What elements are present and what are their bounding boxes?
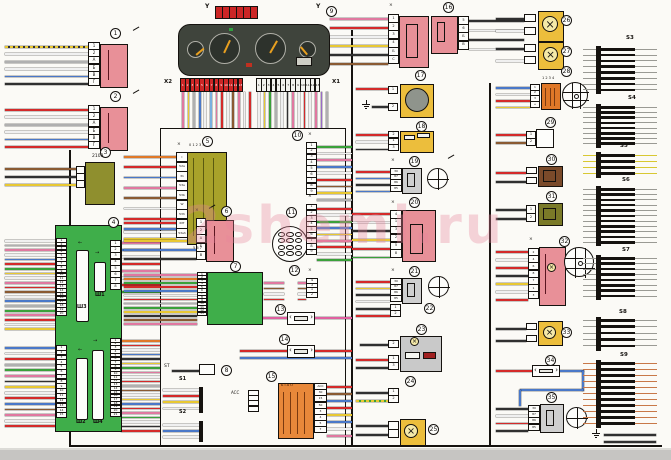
comb-s5 — [601, 160, 635, 163]
wires-x1-down — [275, 92, 277, 128]
wire-starter — [172, 370, 199, 372]
comb-s8 — [601, 319, 635, 322]
comb-s6 — [601, 236, 635, 239]
label-sh2: Ш2 — [76, 420, 86, 425]
comb-s9 — [583, 393, 596, 394]
comb-s9 — [601, 368, 635, 371]
component-detail — [407, 283, 415, 297]
wires-28 — [496, 87, 530, 89]
comb-s3 — [601, 48, 635, 51]
component-detail — [193, 158, 194, 236]
wires-x2-down — [199, 92, 201, 128]
comb-s8 — [601, 325, 635, 328]
wires-block-left-top — [5, 328, 56, 330]
comb-s4 — [635, 138, 657, 139]
wires-29 — [496, 134, 526, 136]
wires-2103 — [5, 168, 76, 170]
pins-relay19: 30878685 — [390, 168, 402, 192]
badge-23: 23 — [416, 324, 427, 335]
pins-31: 12 — [526, 205, 536, 222]
wires-block-right-bottom — [121, 412, 160, 414]
wires-20 — [352, 257, 390, 259]
wires-block-left-bottom — [5, 375, 56, 377]
comb-s5 — [635, 155, 657, 156]
comb-s6 — [635, 226, 657, 227]
wire-motor17 — [356, 88, 388, 90]
badge-13: 13 — [275, 304, 286, 315]
wires-block-right-bottom — [121, 399, 160, 401]
badge-26: 26 — [561, 15, 572, 26]
wires-30 — [496, 172, 526, 174]
wires-green7 — [124, 274, 197, 276]
badge-21: 21 — [409, 266, 420, 277]
comb-s4 — [583, 122, 596, 123]
comb-s6 — [601, 209, 635, 212]
wires-block-right-bottom — [121, 403, 160, 405]
wires-block-left-top — [5, 310, 56, 312]
component28-body — [541, 83, 561, 110]
wires-strip11 — [317, 240, 352, 242]
wire-34-loop-d — [519, 390, 521, 406]
wires-green7 — [124, 307, 197, 309]
label-st: ST — [164, 365, 170, 370]
wires-relay16-left — [330, 63, 388, 65]
comb-s9-spine — [596, 360, 601, 428]
wire-34-loop-a — [560, 370, 584, 372]
wires-block-left-top — [5, 245, 56, 247]
comb-s6 — [635, 242, 657, 243]
wires-relay21 — [356, 288, 390, 290]
wires-18 — [356, 134, 388, 136]
wires-18 — [356, 141, 388, 143]
wires-green7 — [124, 311, 197, 313]
wires-green7 — [124, 303, 197, 305]
wires-s1 — [163, 395, 199, 397]
wires-green7 — [124, 278, 197, 280]
wires-relay16-left — [330, 18, 388, 20]
component-detail — [297, 392, 298, 434]
comb-s6 — [635, 205, 657, 206]
comb-s6 — [635, 221, 657, 222]
label-acc: ACC — [231, 391, 239, 395]
label-s8: S8 — [619, 310, 627, 316]
comb-s5 — [583, 173, 596, 174]
wires-28 — [496, 94, 530, 96]
wires-strip11 — [317, 234, 352, 236]
wires-block-right-bottom — [121, 408, 160, 410]
comb-s3 — [635, 60, 657, 61]
wires-block-left-bottom — [5, 425, 56, 427]
comb-s9 — [583, 363, 596, 364]
wires-block-right-bottom — [121, 367, 160, 369]
wires-2103 — [5, 176, 76, 178]
comb-s9 — [583, 423, 596, 424]
comb-s3 — [635, 66, 657, 67]
wires-s2 — [163, 436, 199, 438]
pins-strip11: 123456789 — [306, 204, 317, 255]
badge-28: 28 — [561, 66, 572, 77]
comb-s9 — [601, 392, 635, 395]
wires-x2-down — [238, 92, 240, 128]
wires-strip10 — [317, 146, 352, 148]
wires-switch5 — [124, 208, 176, 210]
wires-31 — [496, 218, 526, 220]
wires-x2-down — [221, 92, 223, 128]
wires-block-right-bottom — [121, 372, 160, 374]
wires-relay2 — [5, 109, 88, 111]
pins-strip10: 123456789 — [306, 142, 317, 195]
pins-relay2: 12АБВГ — [88, 105, 100, 149]
wires-strip12-left — [264, 288, 284, 290]
comb-s5 — [583, 167, 596, 168]
wires-relay35 — [496, 423, 528, 425]
component-detail — [545, 88, 546, 106]
comb-s4 — [635, 143, 657, 144]
wires-relay2 — [5, 131, 88, 133]
comb-s8 — [583, 333, 596, 334]
comb-s9 — [601, 380, 635, 383]
wires-22 — [356, 308, 390, 310]
wires-block-left-top — [5, 273, 56, 275]
wires-32 — [496, 283, 528, 285]
pins-25 — [388, 421, 399, 438]
label-x2: X2 — [164, 80, 172, 86]
wire-23-top — [360, 344, 388, 346]
wires-ignition-right — [327, 428, 352, 430]
wires-relay6 — [124, 258, 196, 260]
pins-strip12: 4312 — [306, 278, 318, 298]
wires-block-left-top — [5, 277, 56, 279]
wires-green7 — [124, 299, 197, 301]
wires-strip10 — [317, 199, 352, 201]
wires-green7 — [124, 282, 197, 284]
lamp33-bulb: × — [543, 326, 556, 339]
arrow-sh3: ← — [78, 241, 82, 246]
label-s3: S3 — [626, 36, 634, 42]
wires-lamp26 — [496, 18, 524, 20]
comb-s9 — [635, 417, 657, 418]
comb-s7 — [635, 296, 657, 297]
comb-s9 — [635, 399, 657, 400]
wires-x1-down — [264, 92, 266, 128]
comb-s9 — [635, 375, 657, 376]
wires-ignition-right — [327, 421, 352, 423]
wires-x2-down — [216, 92, 218, 128]
wires-block-left-top — [5, 249, 56, 251]
comb-s4 — [583, 117, 596, 118]
pins-23-a: 2 — [388, 340, 399, 348]
comb-s3 — [635, 78, 657, 79]
wires-x2-down — [193, 92, 195, 128]
wires-32 — [496, 291, 528, 293]
connector-symbol: × — [391, 269, 395, 274]
wires-relay16-right — [469, 39, 524, 41]
label-s2: S2 — [179, 410, 186, 415]
badge-6: 6 — [221, 206, 232, 217]
switch-s2-bar — [199, 421, 203, 442]
comb-s4 — [583, 107, 596, 108]
wires-strip11 — [317, 246, 352, 248]
comb-s9 — [635, 411, 657, 412]
wires-relay1 — [5, 46, 88, 48]
wires-22 — [356, 315, 390, 317]
ground-symbol-17 — [362, 104, 370, 105]
badge-12: 12 — [289, 265, 300, 276]
badge-10: 10 — [292, 130, 303, 141]
connector-sh2-body — [76, 358, 88, 420]
comb-s6 — [601, 204, 635, 207]
comb-s6 — [583, 194, 596, 195]
wires-x2-down — [227, 92, 229, 128]
wires-block-left-bottom — [5, 392, 56, 394]
wires-block-left-bottom — [5, 347, 56, 349]
connector-symbol: × — [391, 201, 395, 206]
wires-28 — [496, 107, 530, 109]
wires-strip10 — [317, 153, 352, 155]
wires-block-right-bottom — [121, 376, 160, 378]
pins-relay1: 12АБВГ — [88, 42, 100, 86]
wires-20 — [352, 248, 390, 250]
comb-s4 — [583, 143, 596, 144]
comb-s7 — [583, 274, 596, 275]
wires-strip11 — [317, 208, 352, 210]
label-switch5-bottom: 5 6 7 — [193, 247, 202, 251]
wires-strip10 — [317, 186, 352, 188]
wires-block-right-bottom — [121, 381, 160, 383]
wires-block-right-bottom — [121, 426, 160, 428]
wires-relay16-left — [330, 54, 388, 56]
wires-relay1 — [5, 83, 88, 85]
fuse-13: ‹› — [287, 312, 315, 325]
comb-s9 — [583, 417, 596, 418]
label-s4: S4 — [628, 96, 636, 102]
fuse-34: ‹› — [532, 365, 560, 377]
wires-block-left-top — [5, 240, 56, 242]
pins-ignition: ACC3015503457 — [314, 383, 327, 433]
label-s9: S9 — [620, 353, 628, 359]
wires-x2-down — [182, 92, 184, 128]
comb-s6 — [583, 189, 596, 190]
pins-26-a — [524, 14, 536, 22]
comb-s3-spine — [596, 46, 601, 94]
comb-s3 — [601, 60, 635, 63]
wires-block-left-bottom — [5, 420, 56, 422]
comb-s9 — [601, 362, 635, 365]
wires-block-left-bottom — [5, 414, 56, 416]
comb-s7 — [583, 263, 596, 264]
wiring-diagram-canvas: 123456789101112131234567891011121312АБВГ… — [0, 0, 671, 460]
wires-relay1 — [5, 61, 88, 63]
wire-fuse13-right — [315, 317, 352, 319]
wires-block-left-top — [5, 314, 56, 316]
comb-s8 — [601, 332, 635, 335]
wires-strip10 — [317, 192, 352, 194]
comb-s4 — [635, 112, 657, 113]
connector-sh4-body — [92, 350, 104, 420]
round-connector-21 — [428, 276, 449, 297]
comb-s8-spine — [596, 317, 601, 351]
wires-strip12-right — [298, 299, 306, 301]
lighter23-lamp: × — [410, 337, 419, 346]
wires-strip11 — [317, 214, 352, 216]
wires-strip10 — [317, 172, 352, 174]
wire-34 — [496, 370, 532, 372]
comb-s3 — [601, 83, 635, 86]
wires-30 — [496, 181, 526, 183]
wires-32 — [496, 259, 528, 261]
comb-s5 — [601, 154, 635, 157]
wires-2103 — [5, 184, 76, 186]
badge-24: 24 — [405, 376, 416, 387]
comb-s7 — [601, 268, 635, 271]
wires-ignition-right — [327, 414, 352, 416]
comb-s7 — [635, 258, 657, 259]
comb-s6 — [601, 225, 635, 228]
comb-s6 — [635, 237, 657, 238]
comb-s4 — [601, 132, 635, 135]
wires-relay1 — [5, 76, 88, 78]
comb-s7 — [601, 289, 635, 292]
wires-strip11 — [317, 253, 352, 255]
wires-32 — [496, 299, 528, 301]
wires-block-right-bottom — [121, 430, 160, 432]
wires-23 — [356, 359, 388, 361]
comb-s3 — [635, 89, 657, 90]
comb-s8 — [635, 326, 657, 327]
wires-ground-right — [604, 434, 656, 436]
wires-green7 — [124, 319, 197, 321]
badge-14: 14 — [279, 334, 290, 345]
wires-x1-down — [309, 92, 311, 128]
wires-block-right-bottom — [121, 394, 160, 396]
comb-s9 — [583, 387, 596, 388]
wires-strip10 — [317, 159, 352, 161]
wires-strip12-left — [264, 299, 284, 301]
pins-30-a — [526, 167, 537, 174]
comb-s7 — [635, 279, 657, 280]
comb-s7 — [635, 263, 657, 264]
comb-s9 — [601, 422, 635, 425]
ground-symbol-17 — [366, 100, 367, 104]
component-detail — [543, 208, 556, 220]
comb-s3 — [583, 72, 596, 73]
wires-x1-down — [281, 92, 283, 128]
comb-s6 — [583, 226, 596, 227]
label-sh4: Ш4 — [93, 420, 103, 425]
wires-block-right-bottom — [121, 385, 160, 387]
ground-symbol-17 — [365, 108, 368, 109]
comb-s9 — [601, 386, 635, 389]
mounting-block-pins-lb: 123456789101112131415 — [56, 345, 67, 418]
badge-22: 22 — [424, 303, 435, 314]
comb-s5-spine — [596, 152, 601, 178]
wires-ignition-right — [327, 400, 352, 402]
wires-relay16-left — [330, 36, 388, 38]
wires-block-left-top — [5, 300, 56, 302]
comb-s3 — [601, 77, 635, 80]
odometer-display — [296, 57, 312, 66]
comb-s9 — [601, 416, 635, 419]
label-28-top: 1 2 3 4 — [542, 77, 554, 81]
comb-s6 — [583, 231, 596, 232]
starter-contact-box — [199, 364, 215, 375]
wires-strip11 — [317, 221, 352, 223]
comb-s5 — [583, 155, 596, 156]
badge-15: 15 — [266, 371, 277, 382]
wires-x1-down — [287, 92, 289, 128]
comb-s9 — [635, 405, 657, 406]
switch32-body — [539, 247, 566, 306]
pins-relay16-right: 56БВ — [458, 16, 469, 50]
connector-symbol: × — [177, 143, 181, 148]
label-sh1: Ш1 — [95, 293, 105, 298]
pins-32: 2468713 — [528, 248, 539, 299]
connector-symbol: × — [195, 209, 199, 214]
wires-24 — [356, 392, 388, 394]
comb-s9 — [635, 423, 657, 424]
connector-symbol: × — [308, 195, 312, 200]
badge-8: 8 — [221, 365, 232, 376]
pins-22: 12 — [390, 304, 401, 317]
badge-32: 32 — [559, 236, 570, 247]
wires-block-left-bottom — [5, 403, 56, 405]
wires-block-right-bottom — [121, 363, 160, 365]
pins-motor17-a: 1 — [388, 86, 398, 94]
wires-20 — [352, 213, 390, 215]
lamp25-bulb: × — [404, 424, 418, 438]
indicator-light — [246, 63, 252, 67]
label-switch5-top: 0 1 2 3 4 — [189, 144, 205, 148]
pins-24: 12 — [388, 388, 399, 403]
comb-s7 — [583, 296, 596, 297]
comb-s4 — [635, 107, 657, 108]
wires-green7 — [124, 315, 197, 317]
wires-x2-down — [249, 92, 251, 128]
pins-relay6: 12АБВ — [196, 218, 206, 260]
wires-ground-right — [604, 441, 656, 443]
wires-x2-down — [210, 92, 212, 128]
wires-x1-down — [326, 92, 328, 128]
label-y-left: Y — [205, 4, 209, 10]
ground-symbol-right — [595, 437, 598, 438]
switch29-body — [536, 129, 554, 148]
component-detail — [546, 410, 554, 426]
wires-block-right-bottom — [121, 349, 160, 351]
label-y-right: Y — [316, 4, 320, 10]
wires-32 — [496, 267, 528, 269]
component-detail — [290, 392, 291, 434]
wires-block-left-top — [5, 254, 56, 256]
comb-s3 — [601, 89, 635, 92]
wires-block-left-bottom — [5, 381, 56, 383]
wires-block-left-bottom — [5, 353, 56, 355]
wires-block-left-top — [5, 282, 56, 284]
comb-s9 — [583, 369, 596, 370]
round-connector-11 — [272, 226, 308, 262]
pins-relay35: 30878685 — [528, 405, 540, 431]
wires-strip11 — [317, 227, 352, 229]
pins-acc-strip — [248, 390, 259, 412]
comb-s6-spine — [596, 186, 601, 246]
comb-s8 — [635, 339, 657, 340]
pins-33-b — [526, 335, 537, 342]
ground-symbol-right — [592, 433, 600, 434]
arrow-sh1: → — [95, 251, 99, 256]
ground-symbol-17 — [364, 106, 369, 107]
connector-symbol: × — [529, 238, 533, 243]
pins-23-b: 13 — [388, 355, 399, 370]
comb-s8 — [635, 333, 657, 334]
